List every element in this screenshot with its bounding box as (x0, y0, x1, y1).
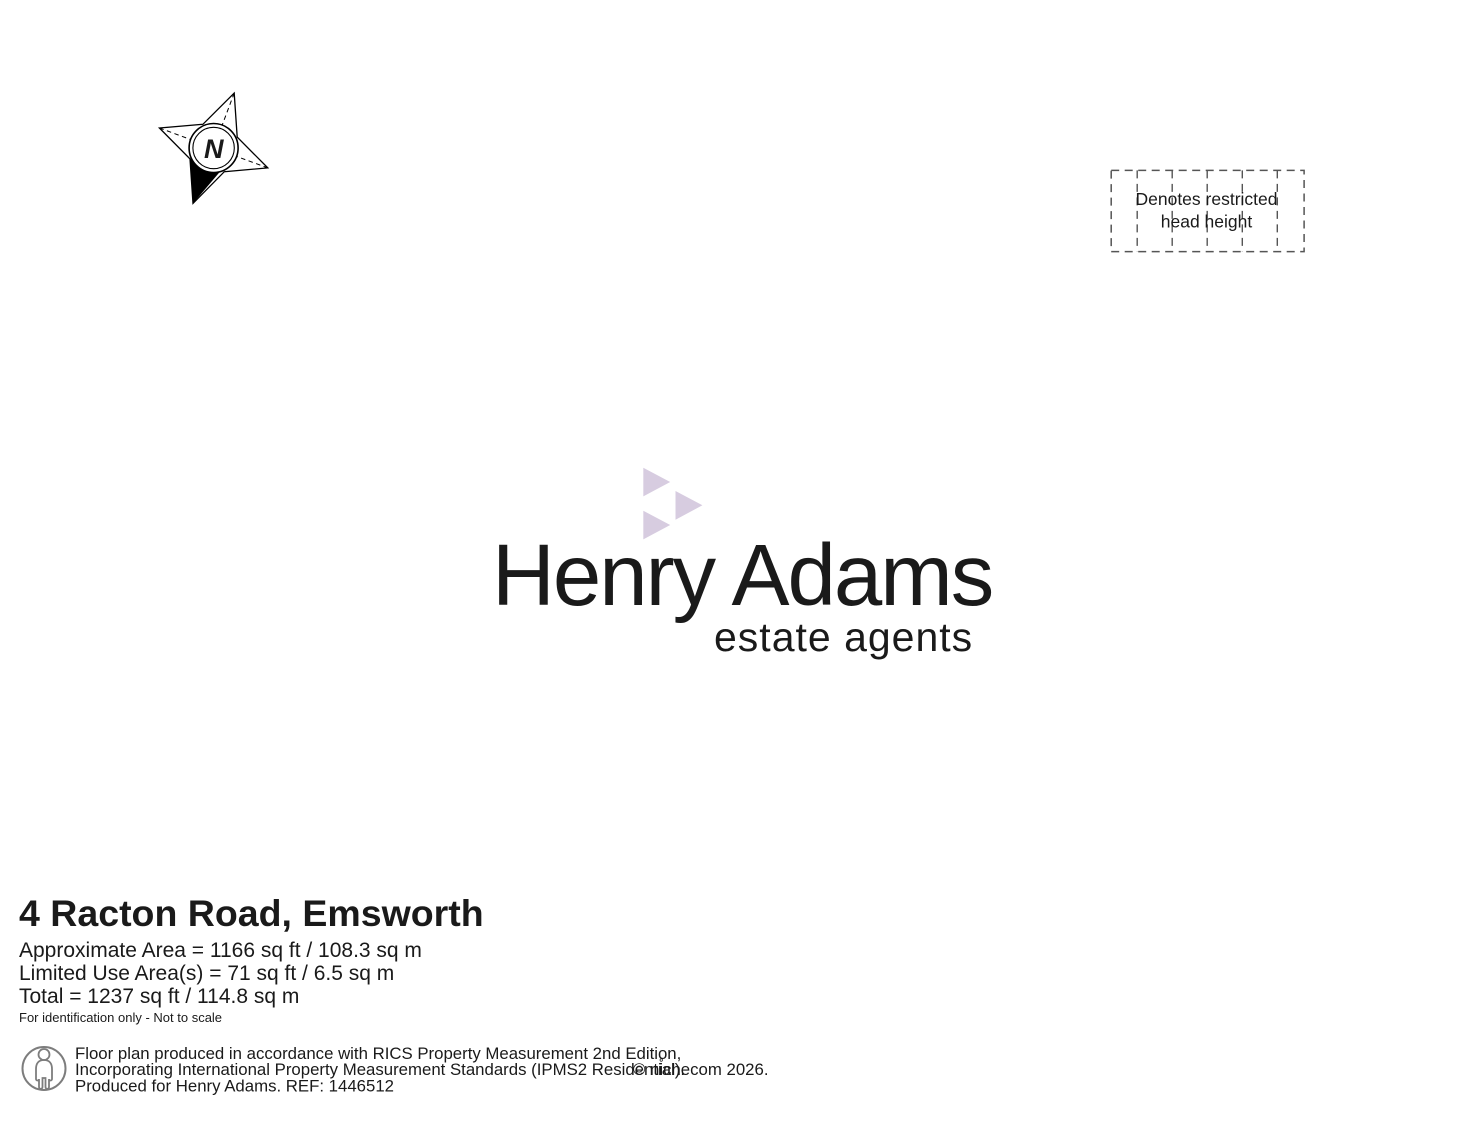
svg-text:4 Racton Road, Emsworth: 4 Racton Road, Emsworth (19, 892, 484, 934)
svg-text:Henry Adams: Henry Adams (492, 527, 992, 624)
svg-text:Produced for Henry Adams. RE: Produced for Henry Adams. REF: 1446512 (75, 1077, 394, 1096)
svg-text:Limited Use Area(s) = 71 sq ft: Limited Use Area(s) = 71 sq ft / 6.5 sq … (19, 962, 394, 985)
svg-text:estate agents: estate agents (714, 614, 973, 660)
svg-text:© ni̊checom 2026.: © ni̊checom 2026. (633, 1059, 769, 1079)
svg-text:Denotes restricted: Denotes restricted (1135, 189, 1277, 209)
svg-text:For identification only - Not: For identification only - Not to scale (19, 1010, 222, 1025)
svg-text:head height: head height (1161, 212, 1253, 232)
svg-text:N: N (204, 134, 224, 164)
svg-text:Total = 1237 sq ft / 114.8 sq: Total = 1237 sq ft / 114.8 sq m (19, 985, 299, 1008)
svg-text:Approximate Area = 1166 sq ft: Approximate Area = 1166 sq ft / 108.3 sq… (19, 939, 422, 962)
